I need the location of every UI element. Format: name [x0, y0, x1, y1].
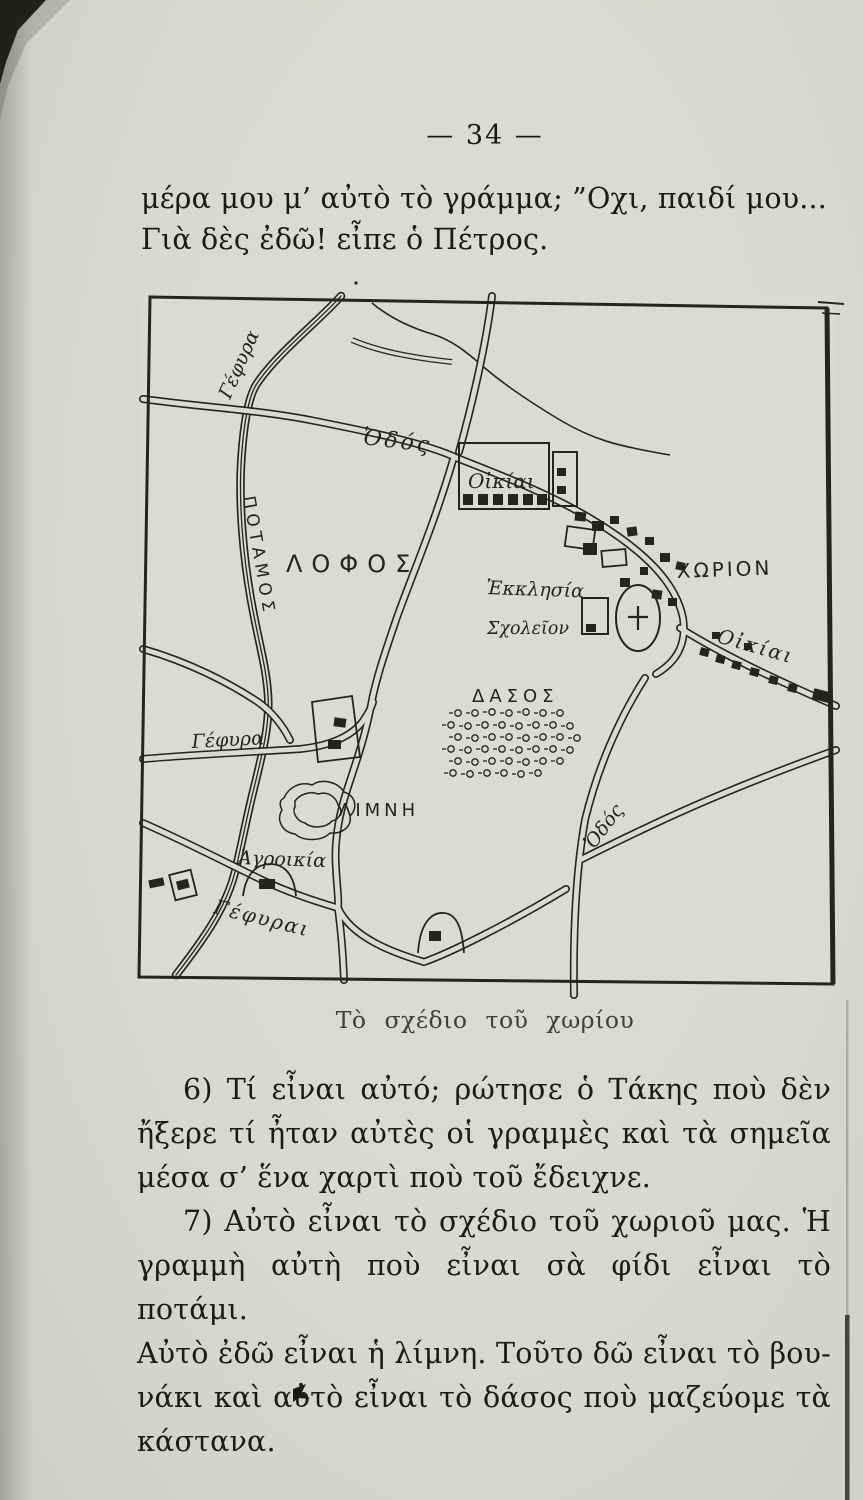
map-label-lake: ΛΙΜΝΗ	[339, 800, 419, 821]
text-line: ἤξερε τί ἦταν αὐτὲς οἱ γραμμὲς καὶ τὰ ση…	[137, 1112, 831, 1156]
text-line: γραμμὴ αὐτὴ ποὺ εἶναι σὰ φίδι εἶναι τὸ π…	[137, 1244, 831, 1332]
map-label-hill: ΛΟΦΟΣ	[286, 550, 419, 578]
text-line: 6) Τί εἶναι αὐτό; ρώτησε ὁ Τάκης ποὺ δὲν	[137, 1068, 831, 1112]
map-label-school: Σχολεῖον	[486, 619, 569, 639]
figure-caption: Τὸ σχέδιο τοῦ χωρίου	[140, 1006, 830, 1034]
book-page: — 34 — μέρα μου μ’ αὐτὸ τὸ γράμμα; ”Οχι,…	[0, 0, 863, 1500]
map-label-village: ΧΩΡΙΟΝ	[676, 556, 772, 583]
map-label-church: Ἐκκλησία	[486, 577, 585, 602]
map-label-bridge-middle: Γέφυρα	[190, 727, 264, 753]
paragraph-7: 7) Αὐτὸ εἶναι τὸ σχέδιο τοῦ χωριοῦ μας. …	[137, 1200, 831, 1464]
map-label-forest: ΔΑΣΟΣ	[472, 686, 559, 707]
text-line: κάστανα.	[137, 1420, 831, 1464]
text-line: 7) Αὐτὸ εἶναι τὸ σχέδιο τοῦ χωριοῦ μας. …	[137, 1200, 831, 1244]
text-line: Αὐτὸ ἐδῶ εἶναι ἡ λίμνη. Τοῦτο δῶ εἶναι τ…	[137, 1332, 831, 1376]
page-edge-right	[845, 1000, 850, 1500]
paragraph-6: 6) Τί εἶναι αὐτό; ρώτησε ὁ Τάκης ποὺ δὲν…	[137, 1068, 831, 1200]
ink-dot	[354, 281, 357, 284]
text-line: νάκι καὶ αὐτὸ εἶναι τὸ δάσος ποὺ μαζεύομ…	[137, 1376, 831, 1420]
corner-smudge	[0, 0, 70, 120]
map-label-farmhouse: Ἀγροικία	[236, 847, 327, 872]
text-line: μέσα σ’ ἕνα χαρτὶ ποὺ τοῦ ἔδειχνε.	[137, 1156, 831, 1200]
map-label-houses-top: Οἰκίαι	[468, 469, 535, 493]
